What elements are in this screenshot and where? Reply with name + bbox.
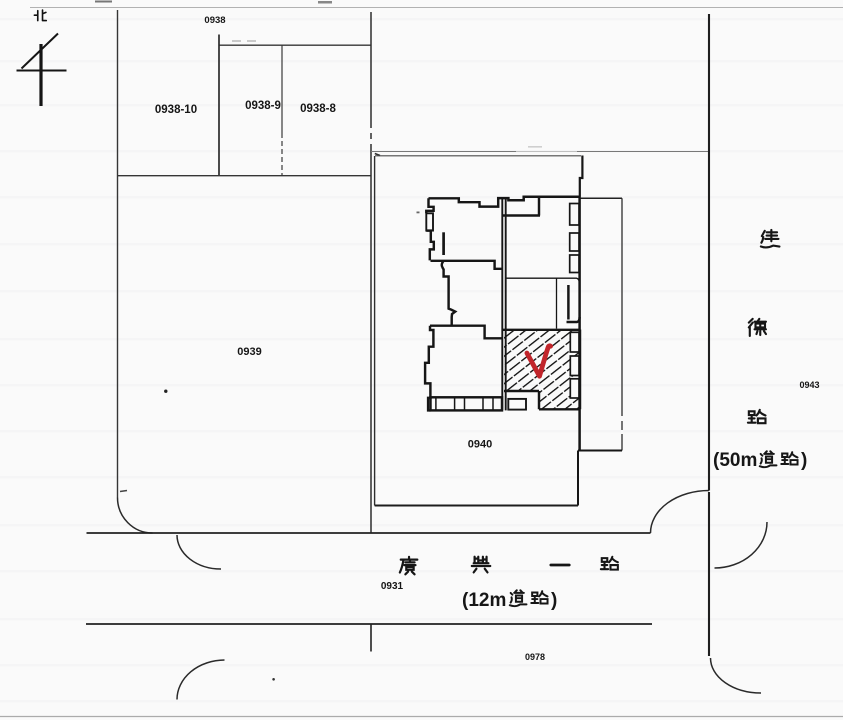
svg-text:0938-9: 0938-9 — [245, 100, 281, 112]
svg-text:): ) — [551, 590, 557, 611]
svg-text:0931: 0931 — [381, 581, 404, 592]
svg-text:0938-10: 0938-10 — [155, 104, 197, 116]
svg-text:0939: 0939 — [237, 346, 261, 358]
svg-text:0940: 0940 — [468, 439, 492, 451]
svg-text:0938-8: 0938-8 — [300, 103, 336, 115]
svg-text:0978: 0978 — [525, 652, 545, 662]
svg-text:(50m: (50m — [713, 450, 757, 471]
svg-text:): ) — [801, 450, 807, 471]
svg-text:0938: 0938 — [204, 15, 225, 26]
svg-text:0943: 0943 — [799, 380, 819, 390]
svg-text:(12m: (12m — [462, 590, 506, 611]
